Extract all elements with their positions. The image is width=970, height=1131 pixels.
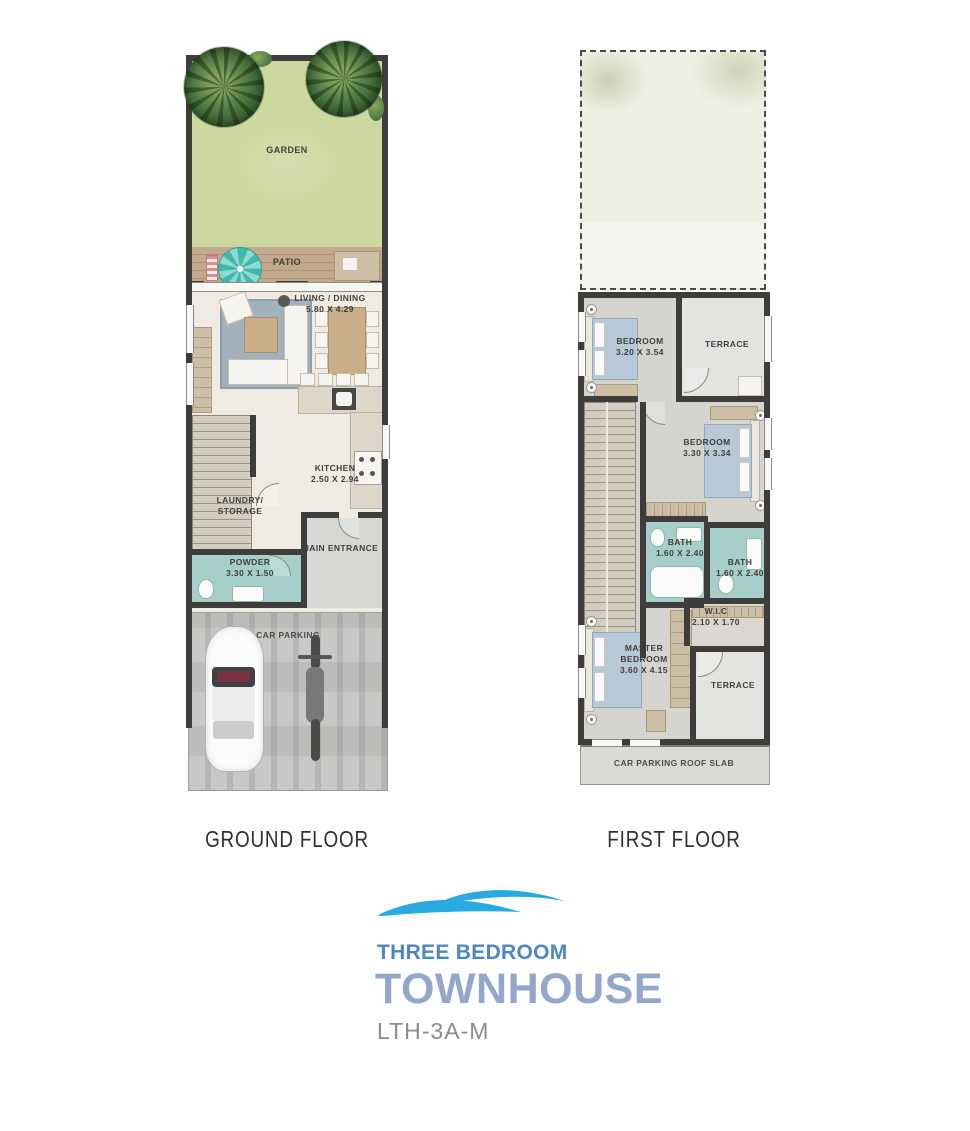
- bath1-top-wall: [646, 516, 708, 522]
- bar-stool: [336, 373, 351, 386]
- room-label-master-bedroom: MASTER BEDROOM 3.60 X 4.15: [612, 643, 676, 676]
- wave-logo: [376, 884, 566, 926]
- powder-bottom-wall: [186, 602, 307, 608]
- dining-chair: [366, 353, 379, 369]
- entrance-left-wall: [301, 512, 307, 608]
- car-rear-window: [213, 721, 254, 739]
- lamp: [586, 304, 597, 315]
- lamp: [586, 382, 597, 393]
- ground-floor-plan: GARDEN PATIO LIVING / DINING 5.80 X 4.29…: [186, 55, 388, 789]
- terrace2-top-wall: [690, 646, 764, 652]
- dining-table: [328, 307, 366, 375]
- powder-top-wall: [192, 549, 304, 555]
- stairs: [192, 415, 252, 551]
- brand-type-line: THREE BEDROOM: [377, 941, 568, 965]
- bed2-window: [764, 458, 772, 490]
- brand-product-line: TOWNHOUSE: [375, 968, 663, 1011]
- bar-stool: [318, 373, 333, 386]
- stove-burner: [359, 457, 364, 462]
- bed2-window: [764, 418, 772, 450]
- media-console: [192, 327, 212, 413]
- bed1-window: [578, 350, 586, 376]
- first-floor-plan: BEDROOM 3.20 X 3.54 TERRACE BEDROOM 3.30…: [578, 50, 770, 782]
- wic-top-wall: [684, 598, 764, 604]
- room-label-terrace-upper: TERRACE: [687, 339, 767, 350]
- lamp: [586, 714, 597, 725]
- coffee-table: [244, 317, 278, 353]
- stair-core-wall: [640, 402, 646, 658]
- room-label-roof-slab: CAR PARKING ROOF SLAB: [580, 758, 768, 769]
- pillow: [594, 672, 605, 702]
- room-label-bedroom-2: BEDROOM 3.30 X 3.34: [667, 437, 747, 459]
- bench: [646, 710, 666, 732]
- patio-window: [192, 282, 382, 292]
- room-label-living-dining: LIVING / DINING 5.80 X 4.29: [280, 293, 380, 315]
- entrance-top-wall: [307, 512, 339, 518]
- sofa: [228, 359, 288, 385]
- motorcycle-body: [306, 667, 324, 723]
- bed1-bottom-wall: [584, 396, 638, 402]
- stair-wall: [250, 415, 256, 477]
- room-label-main-entrance: MAIN ENTRANCE: [300, 543, 380, 554]
- toilet: [198, 579, 214, 599]
- room-label-bath-2: BATH 1.60 X 2.40: [708, 557, 772, 579]
- dining-chair: [315, 332, 328, 348]
- pillow: [739, 462, 750, 492]
- motorcycle-handlebar: [298, 655, 332, 659]
- brand-unit-code: LTH-3A-M: [377, 1018, 489, 1045]
- room-label-garden: GARDEN: [186, 145, 388, 157]
- pillow: [594, 637, 605, 667]
- master-window: [578, 668, 586, 698]
- bed1-window: [578, 312, 586, 342]
- dresser: [710, 406, 758, 420]
- entrance-top-wall: [358, 512, 382, 518]
- bath2-top-wall: [710, 522, 764, 528]
- ground-floor-title: GROUND FLOOR: [204, 826, 370, 853]
- kitchen-sink: [336, 392, 352, 406]
- first-floor-title: FIRST FLOOR: [595, 826, 752, 853]
- lamp: [586, 616, 597, 627]
- terrace-bottom-wall: [676, 396, 764, 402]
- parking-left-stub: [186, 612, 192, 728]
- terrace2-left-wall: [690, 646, 696, 739]
- motorcycle-rear-wheel: [311, 719, 320, 761]
- master-window: [578, 625, 586, 655]
- room-label-patio: PATIO: [186, 257, 388, 269]
- wall-right: [382, 55, 388, 612]
- bar-stool: [300, 373, 315, 386]
- living-window: [186, 363, 194, 405]
- room-label-car-parking: CAR PARKING: [228, 630, 348, 641]
- kitchen-window: [382, 425, 390, 459]
- bathtub: [650, 566, 704, 598]
- room-label-terrace-lower: TERRACE: [693, 680, 773, 691]
- master-bottom-window: [592, 739, 622, 747]
- car-seats: [217, 671, 250, 682]
- dining-chair: [366, 332, 379, 348]
- living-window: [186, 305, 194, 353]
- wall-top: [578, 292, 770, 298]
- palm-tree-icon: [306, 41, 382, 117]
- brochure-page: { "ground_floor": { "title": "GROUND FLO…: [0, 0, 970, 1131]
- room-label-bath-1: BATH 1.60 X 2.40: [645, 537, 715, 559]
- dining-chair: [315, 353, 328, 369]
- room-label-kitchen: KITCHEN 2.50 X 2.94: [285, 463, 385, 485]
- palm-tree-icon: [184, 47, 264, 127]
- master-bottom-window: [630, 739, 660, 747]
- car-roof: [212, 687, 255, 721]
- garden-outline-dashed: [580, 50, 766, 290]
- parking-right-stub: [382, 612, 388, 728]
- vanity-sink: [232, 586, 264, 602]
- stairs: [584, 402, 636, 652]
- bar-stool: [354, 373, 369, 386]
- room-label-bedroom-1: BEDROOM 3.20 X 3.54: [600, 336, 680, 358]
- room-label-laundry: LAUNDRY/ STORAGE: [200, 495, 280, 517]
- stairs-divider: [606, 402, 608, 650]
- room-label-powder: POWDER 3.30 X 1.50: [210, 557, 290, 579]
- terrace-bench: [738, 376, 762, 396]
- room-label-wic: W.I.C 2.10 X 1.70: [681, 606, 751, 628]
